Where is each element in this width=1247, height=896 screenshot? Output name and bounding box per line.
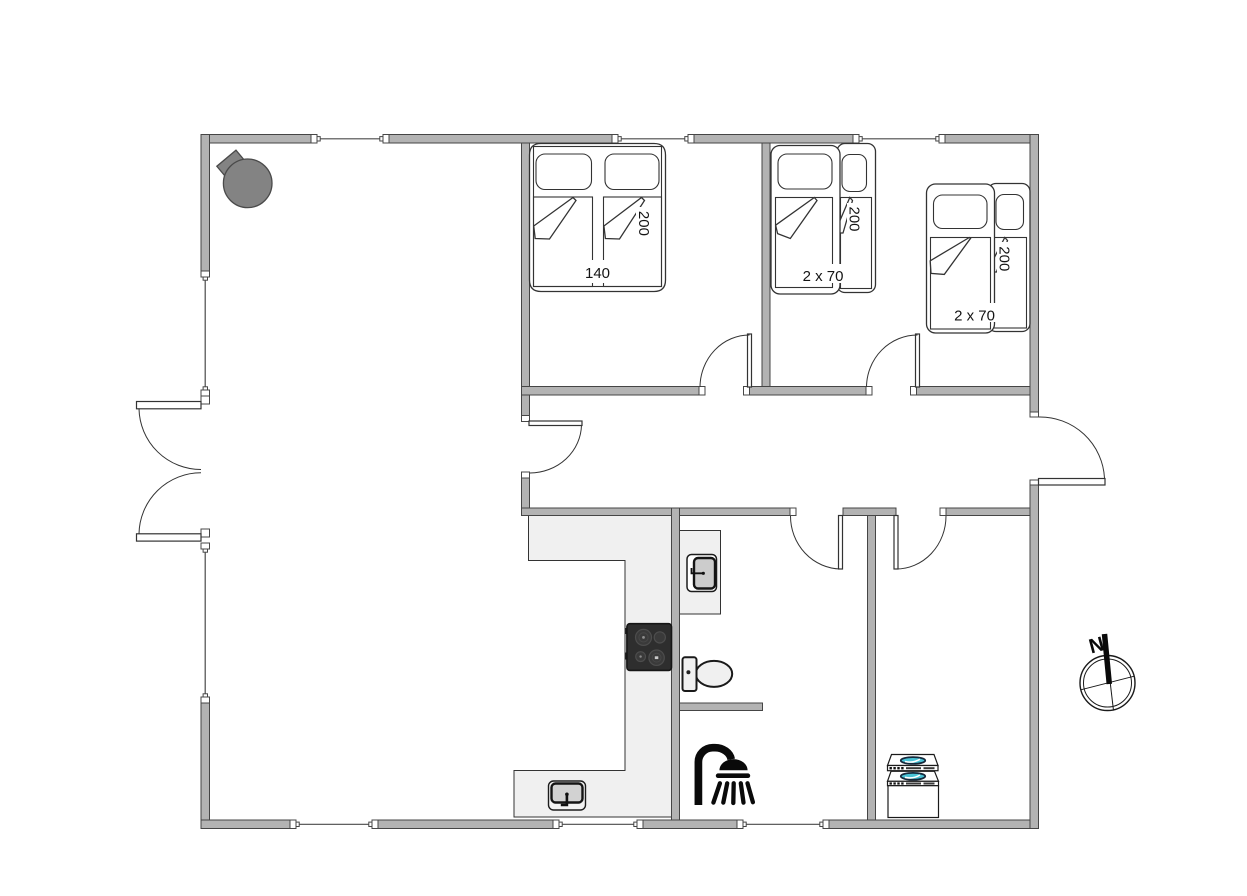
svg-text:2 x 70: 2 x 70 [954, 308, 995, 325]
svg-text:2 x 70: 2 x 70 [803, 268, 844, 285]
svg-text:200: 200 [996, 246, 1013, 271]
svg-text:140: 140 [585, 265, 610, 282]
svg-text:200: 200 [635, 211, 652, 236]
svg-text:200: 200 [846, 206, 863, 231]
